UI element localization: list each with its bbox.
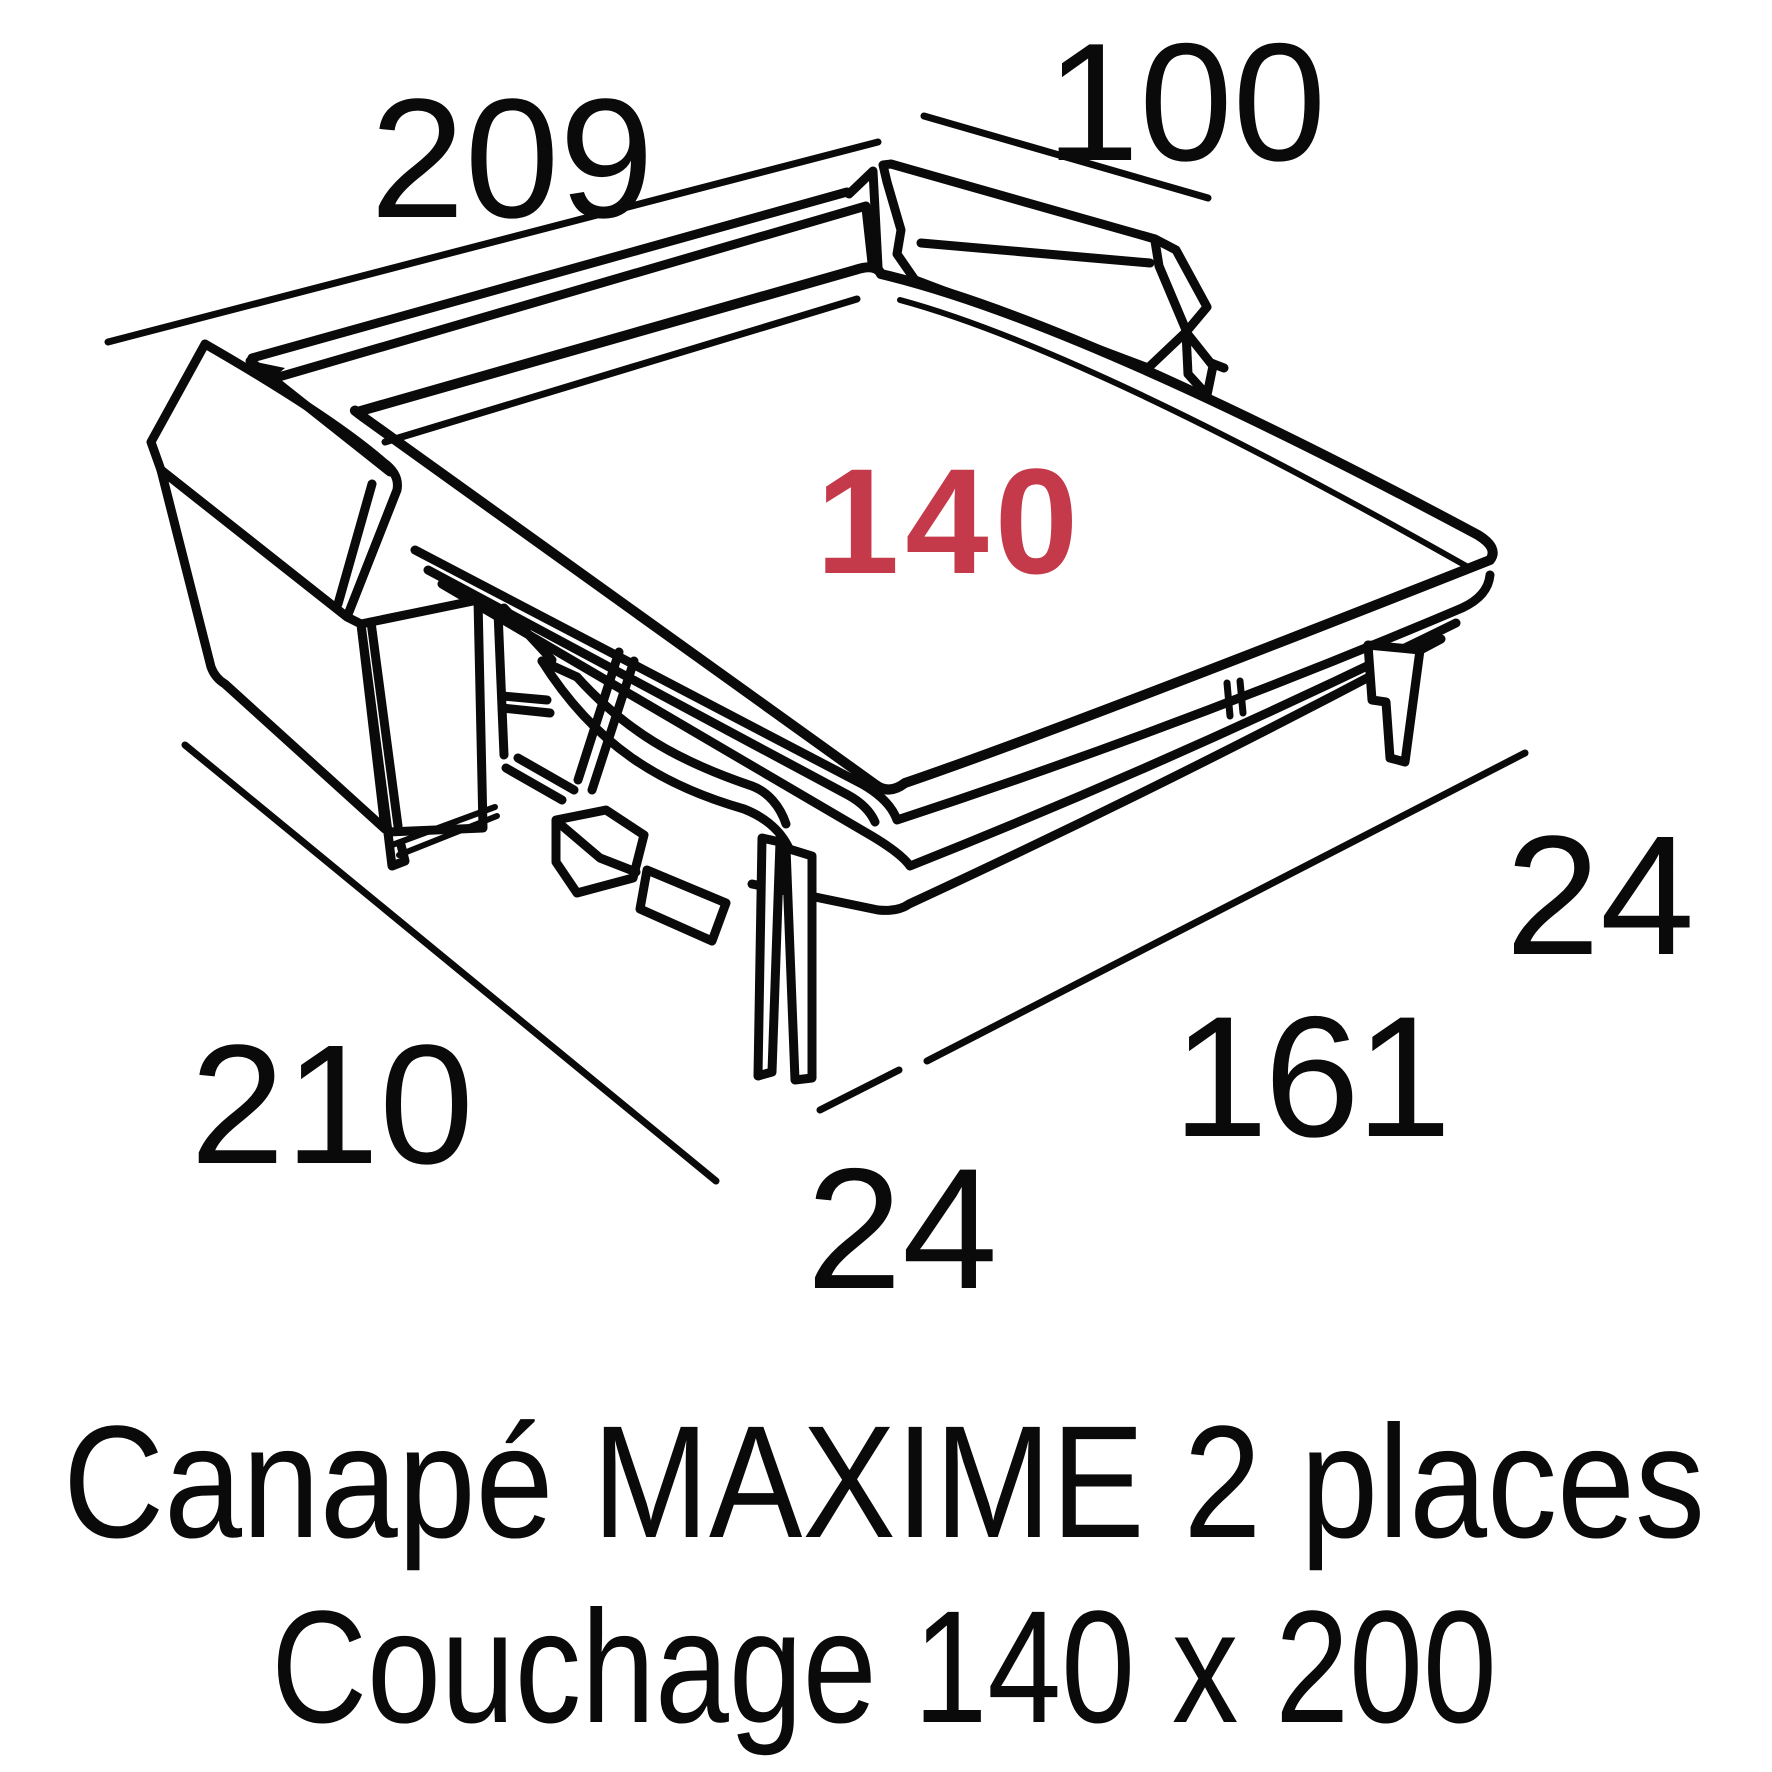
- svg-text:140: 140: [816, 437, 1084, 605]
- svg-text:24: 24: [806, 1133, 997, 1325]
- svg-text:210: 210: [190, 1010, 474, 1200]
- svg-text:100: 100: [1046, 8, 1326, 196]
- svg-text:161: 161: [1173, 981, 1448, 1173]
- svg-text:24: 24: [1505, 801, 1694, 991]
- svg-text:Couchage 140 x 200: Couchage 140 x 200: [271, 1578, 1497, 1756]
- svg-text:Canapé MAXIME 2 places: Canapé MAXIME 2 places: [63, 1392, 1705, 1571]
- svg-text:209: 209: [370, 64, 654, 254]
